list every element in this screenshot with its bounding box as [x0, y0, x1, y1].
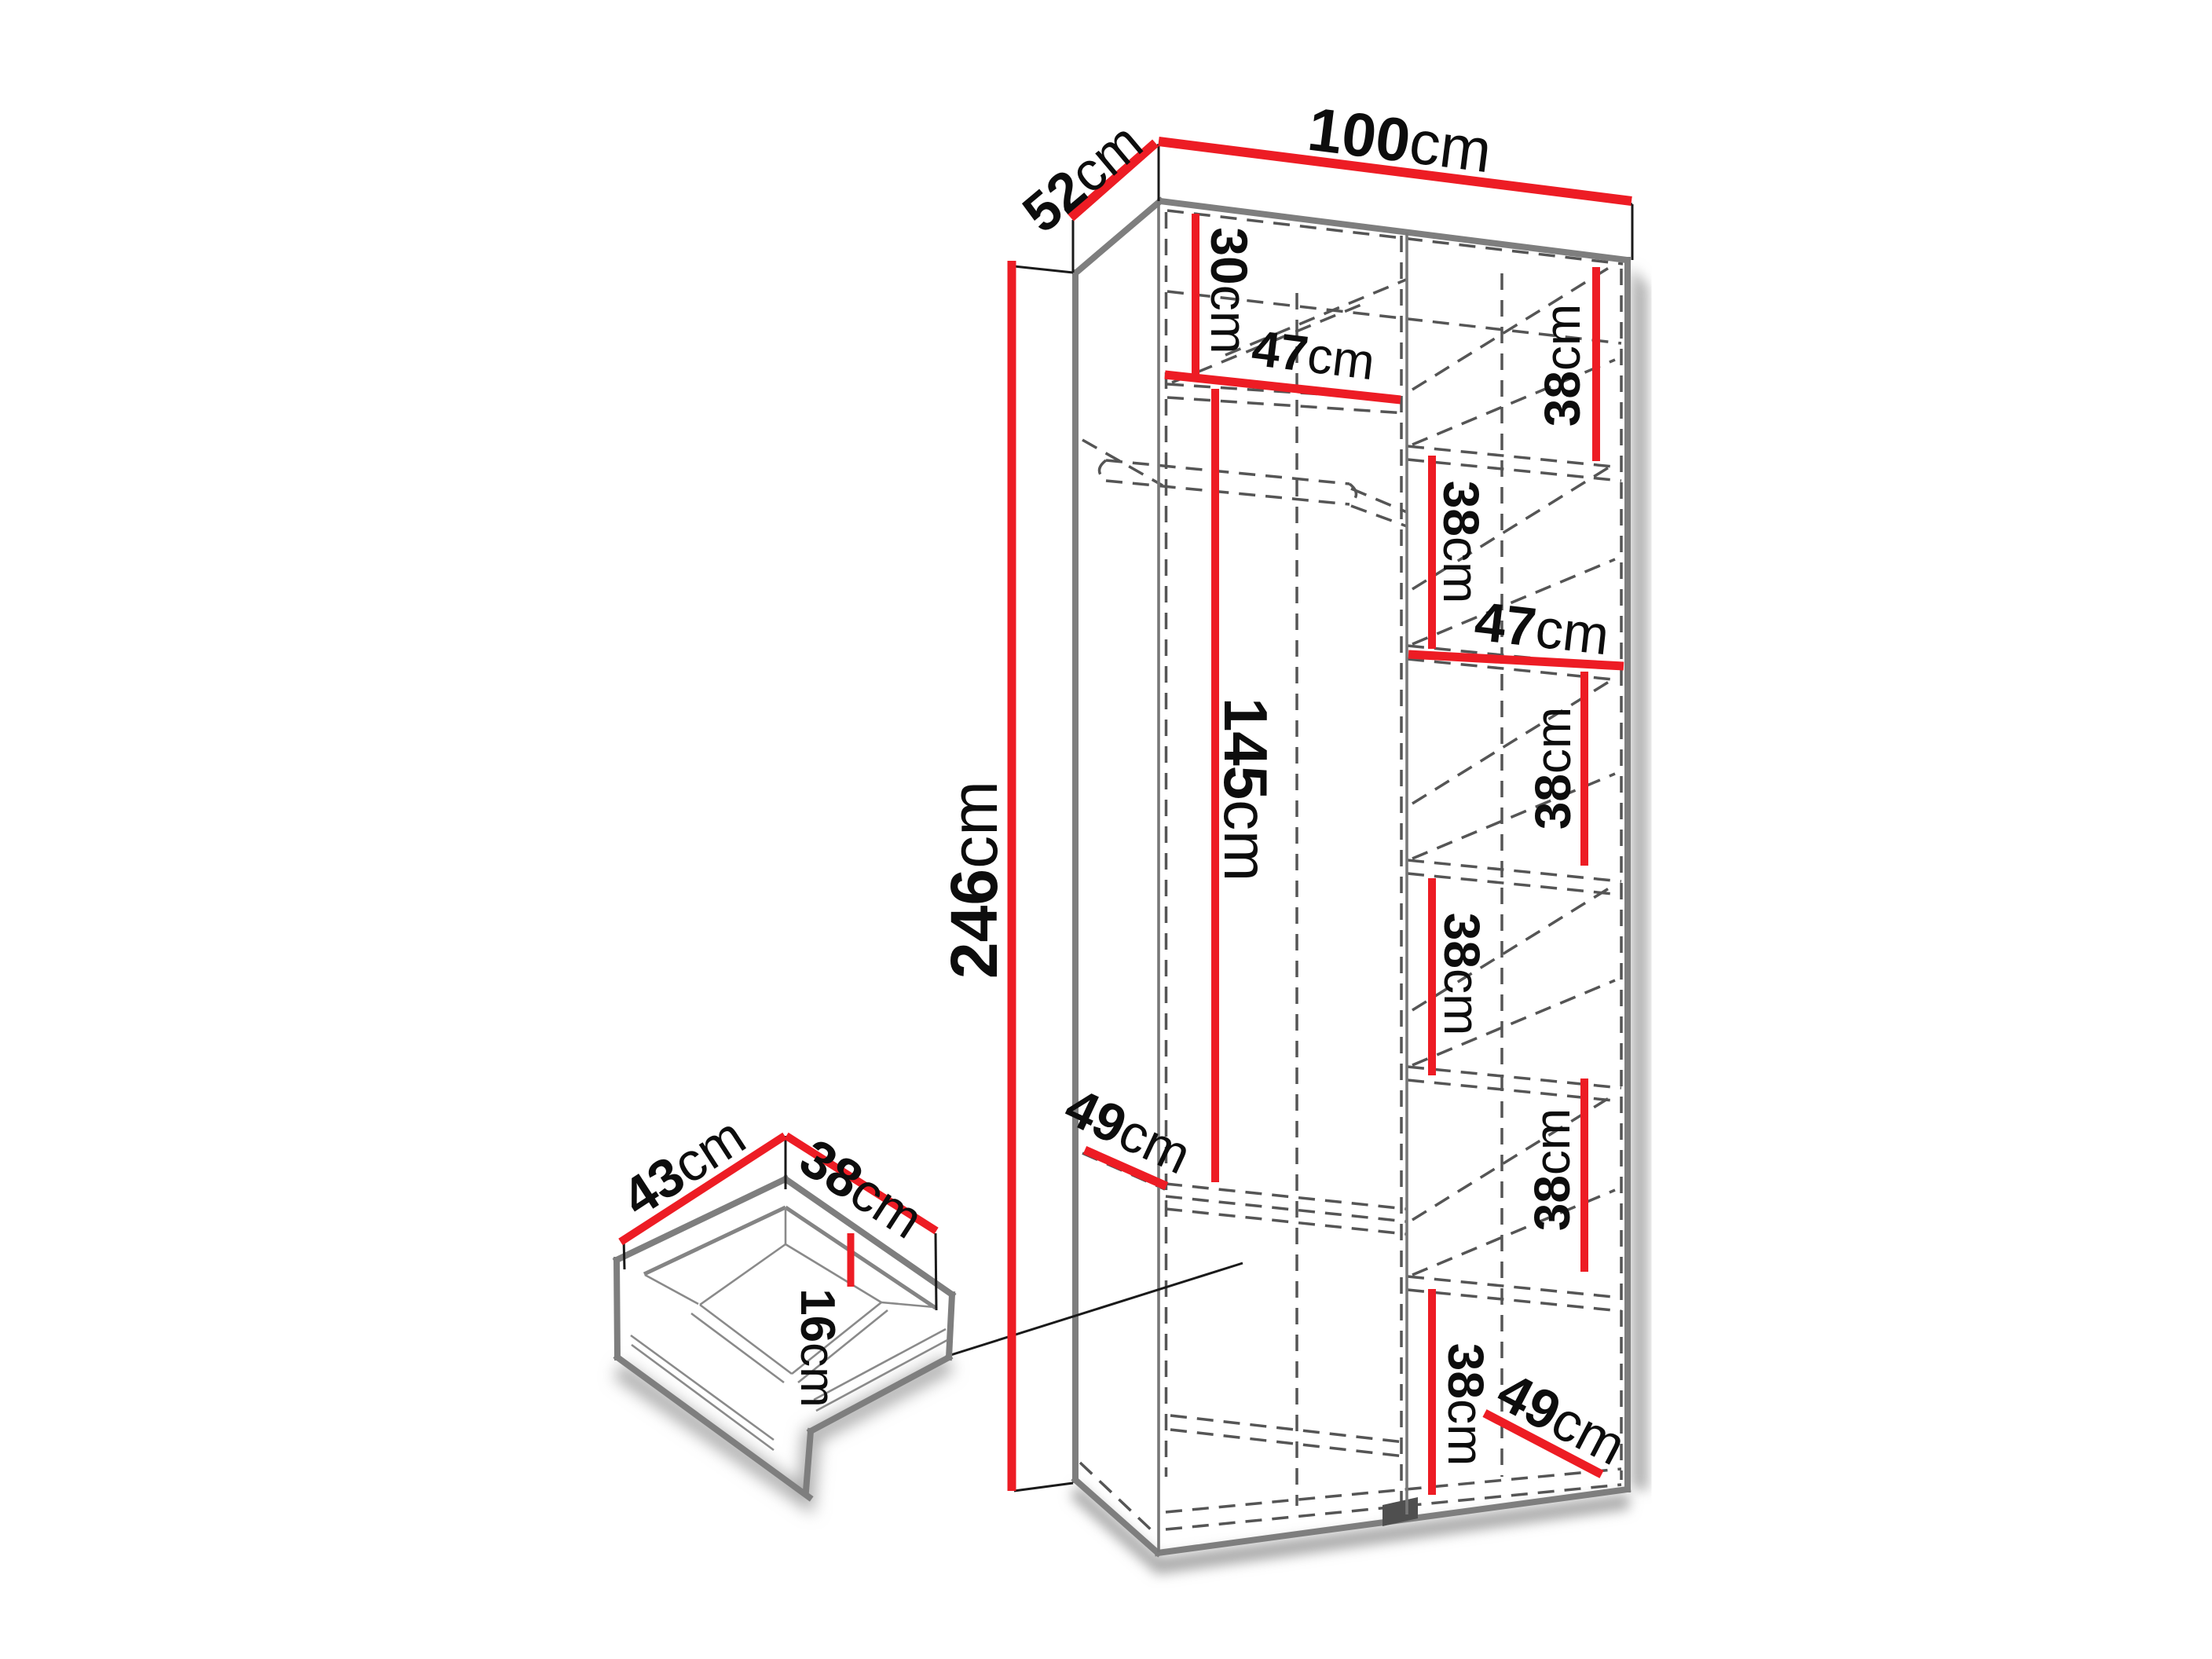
svg-text:145cm: 145cm	[1211, 698, 1280, 881]
svg-text:38cm: 38cm	[1433, 481, 1489, 604]
svg-text:38cm: 38cm	[1525, 707, 1581, 830]
svg-text:38cm: 38cm	[1437, 1343, 1494, 1467]
svg-text:30cm: 30cm	[1200, 227, 1258, 353]
svg-text:246cm: 246cm	[937, 781, 1011, 979]
svg-text:38cm: 38cm	[1524, 1108, 1580, 1232]
svg-text:38cm: 38cm	[1434, 913, 1490, 1036]
svg-text:16cm: 16cm	[791, 1288, 845, 1408]
svg-text:38cm: 38cm	[1534, 304, 1591, 427]
